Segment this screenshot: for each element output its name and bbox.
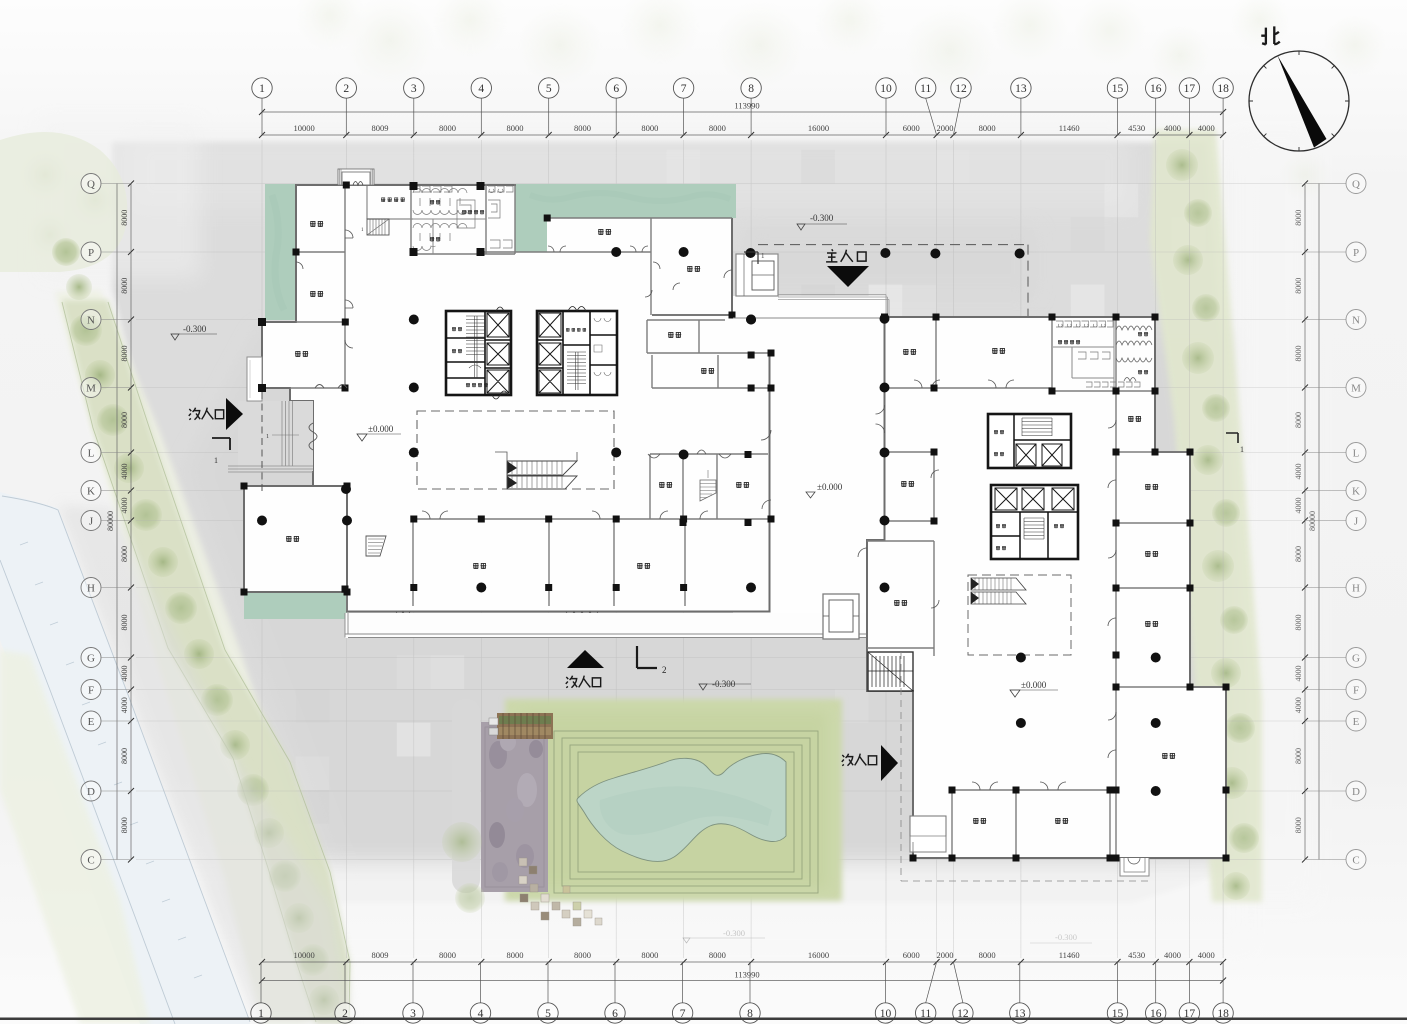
svg-text:12: 12 — [955, 83, 967, 95]
svg-text:1: 1 — [266, 433, 269, 440]
svg-text:±0.000: ±0.000 — [817, 482, 843, 492]
svg-text:16000: 16000 — [808, 123, 829, 133]
svg-text:Q: Q — [1352, 179, 1360, 191]
svg-text:8000: 8000 — [641, 123, 658, 133]
svg-text:10: 10 — [880, 83, 892, 95]
svg-text:8000: 8000 — [641, 950, 658, 960]
svg-text:8000: 8000 — [574, 123, 591, 133]
svg-text:4000: 4000 — [120, 498, 129, 514]
svg-text:8000: 8000 — [439, 950, 456, 960]
svg-text:J: J — [89, 516, 94, 528]
svg-text:8000: 8000 — [1294, 748, 1303, 764]
svg-text:2: 2 — [662, 665, 667, 675]
svg-text:-0.300: -0.300 — [183, 324, 207, 334]
svg-text:E: E — [88, 716, 95, 728]
svg-text:8000: 8000 — [1294, 546, 1303, 562]
svg-text:4000: 4000 — [120, 697, 129, 713]
svg-text:G: G — [1352, 653, 1360, 665]
svg-text:8000: 8000 — [120, 748, 129, 764]
svg-text:113990: 113990 — [734, 970, 759, 980]
svg-text:1: 1 — [259, 83, 265, 95]
svg-text:1: 1 — [761, 252, 765, 260]
svg-text:8009: 8009 — [372, 123, 389, 133]
svg-text:4000: 4000 — [120, 464, 129, 480]
svg-text:11: 11 — [920, 83, 931, 95]
svg-text:3: 3 — [411, 83, 417, 95]
svg-text:K: K — [87, 486, 95, 498]
svg-text:C: C — [1352, 855, 1359, 867]
svg-text:G: G — [87, 653, 95, 665]
svg-text:-0.300: -0.300 — [723, 928, 745, 938]
svg-text:4000: 4000 — [1198, 123, 1215, 133]
svg-text:8000: 8000 — [507, 950, 524, 960]
svg-text:M: M — [1351, 383, 1361, 395]
svg-text:J: J — [1354, 516, 1359, 528]
svg-text:M: M — [86, 383, 96, 395]
svg-text:18: 18 — [1217, 83, 1229, 95]
svg-text:8000: 8000 — [507, 123, 524, 133]
svg-text:±0.000: ±0.000 — [368, 424, 394, 434]
svg-text:N: N — [87, 315, 95, 327]
svg-text:2000: 2000 — [937, 950, 954, 960]
svg-text:E: E — [1353, 716, 1360, 728]
svg-text:K: K — [1352, 486, 1360, 498]
svg-text:D: D — [1352, 786, 1360, 798]
svg-text:4530: 4530 — [1128, 123, 1145, 133]
svg-text:8000: 8000 — [1294, 278, 1303, 294]
svg-text:4000: 4000 — [1294, 697, 1303, 713]
svg-text:113990: 113990 — [734, 101, 759, 111]
svg-text:11460: 11460 — [1059, 123, 1080, 133]
svg-text:8000: 8000 — [1294, 210, 1303, 226]
svg-text:H: H — [87, 583, 95, 595]
svg-text:8000: 8000 — [1294, 346, 1303, 362]
svg-text:16: 16 — [1150, 83, 1162, 95]
svg-text:80000: 80000 — [1308, 511, 1317, 531]
svg-text:15: 15 — [1112, 83, 1124, 95]
svg-text:8000: 8000 — [120, 412, 129, 428]
svg-text:4000: 4000 — [1294, 464, 1303, 480]
svg-text:4000: 4000 — [1164, 950, 1181, 960]
svg-text:4000: 4000 — [120, 666, 129, 682]
svg-text:L: L — [1353, 448, 1360, 460]
svg-text:8000: 8000 — [1294, 412, 1303, 428]
svg-text:4000: 4000 — [1198, 950, 1215, 960]
svg-text:8000: 8000 — [120, 817, 129, 833]
svg-text:16000: 16000 — [808, 950, 829, 960]
svg-text:D: D — [87, 786, 95, 798]
svg-text:C: C — [87, 855, 94, 867]
svg-text:8000: 8000 — [120, 346, 129, 362]
svg-text:8000: 8000 — [120, 210, 129, 226]
svg-text:1: 1 — [1240, 445, 1244, 454]
svg-text:5: 5 — [546, 83, 552, 95]
svg-text:17: 17 — [1184, 83, 1196, 95]
svg-text:8000: 8000 — [1294, 615, 1303, 631]
svg-text:4: 4 — [478, 83, 484, 95]
svg-text:8000: 8000 — [1294, 817, 1303, 833]
svg-text:8000: 8000 — [709, 123, 726, 133]
svg-text:6000: 6000 — [903, 123, 920, 133]
svg-text:P: P — [1353, 247, 1359, 259]
svg-text:4000: 4000 — [1164, 123, 1181, 133]
svg-text:8009: 8009 — [372, 950, 389, 960]
svg-text:8: 8 — [748, 83, 754, 95]
svg-text:P: P — [88, 247, 94, 259]
svg-text:8000: 8000 — [979, 123, 996, 133]
svg-text:F: F — [88, 685, 94, 697]
svg-text:8000: 8000 — [120, 546, 129, 562]
svg-text:8000: 8000 — [120, 278, 129, 294]
svg-text:6: 6 — [613, 83, 619, 95]
svg-text:8000: 8000 — [120, 615, 129, 631]
svg-text:6000: 6000 — [903, 950, 920, 960]
svg-text:2: 2 — [343, 83, 349, 95]
svg-text:4000: 4000 — [1294, 498, 1303, 514]
svg-text:2000: 2000 — [937, 123, 954, 133]
svg-text:8000: 8000 — [439, 123, 456, 133]
svg-text:4530: 4530 — [1128, 950, 1145, 960]
svg-text:80000: 80000 — [106, 511, 115, 531]
svg-text:N: N — [1352, 315, 1360, 327]
svg-text:10000: 10000 — [294, 123, 315, 133]
svg-text:7: 7 — [681, 83, 687, 95]
svg-text:13: 13 — [1015, 83, 1027, 95]
svg-text:±0.000: ±0.000 — [1021, 680, 1047, 690]
svg-text:H: H — [1352, 583, 1360, 595]
svg-text:Q: Q — [87, 179, 95, 191]
svg-text:8000: 8000 — [709, 950, 726, 960]
svg-text:8000: 8000 — [574, 950, 591, 960]
svg-text:-0.300: -0.300 — [810, 213, 834, 223]
svg-text:4000: 4000 — [1294, 666, 1303, 682]
svg-text:-0.300: -0.300 — [1055, 932, 1077, 942]
svg-text:8000: 8000 — [979, 950, 996, 960]
svg-text:11460: 11460 — [1059, 950, 1080, 960]
svg-text:10000: 10000 — [294, 950, 315, 960]
svg-text:F: F — [1353, 685, 1359, 697]
svg-text:1: 1 — [214, 456, 218, 465]
svg-text:L: L — [88, 448, 95, 460]
